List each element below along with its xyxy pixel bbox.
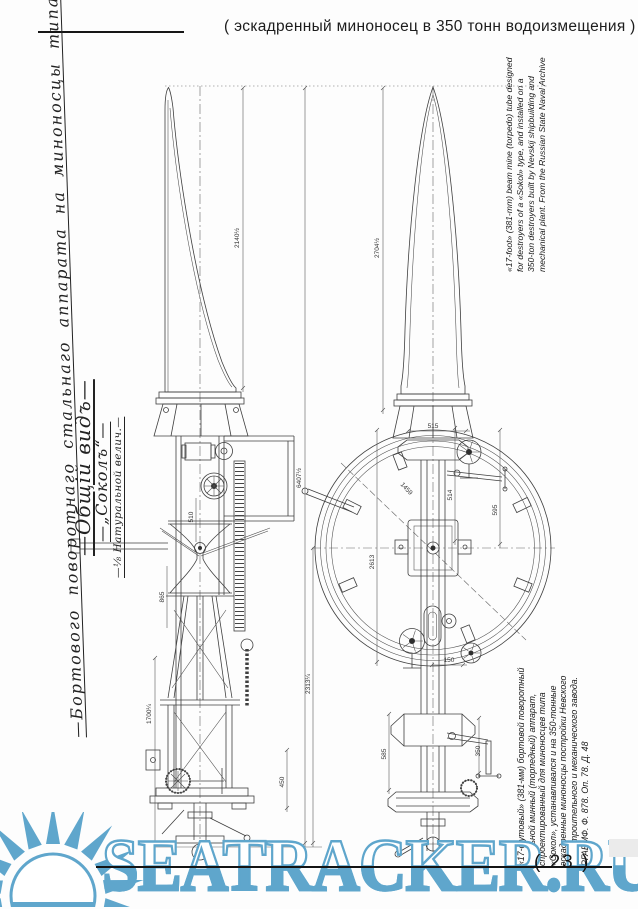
dimension-label: 1459 — [399, 481, 414, 497]
drawing-title-sokol: —„Соколъ“— — [92, 422, 111, 542]
dimension-label: 585 — [381, 748, 388, 759]
dimension-label: 2313¼ — [305, 673, 312, 693]
page-header: ( эскадренный миноносец в 350 тонн водои… — [224, 18, 636, 36]
drawing-title-scale: —⅛ Натуральной велич.— — [112, 417, 124, 578]
training-circle-cleats — [339, 452, 532, 643]
dimension-label: 2613 — [369, 554, 376, 569]
dimension-label: 510 — [188, 511, 195, 522]
caption-line: for destroyers of a «Sokol» type, and in… — [515, 57, 526, 272]
caption-line: 350-ton destroyers built by Nevskij ship… — [526, 57, 537, 272]
dimension-label: 515 — [428, 423, 439, 430]
dimension-label: 514 — [447, 489, 454, 500]
dimension-label: 1700¼ — [146, 703, 153, 723]
dimension-label: 865 — [159, 591, 166, 602]
dimension-label: 350 — [475, 745, 482, 756]
centerlines — [148, 86, 555, 856]
scan-artifact — [609, 839, 638, 857]
dimension-label: 2704½ — [373, 237, 381, 257]
dimension-label: 6407½ — [295, 467, 303, 487]
scanned-page: ( эскадренный миноносец в 350 тонн водои… — [0, 0, 638, 907]
caption-line: mechanical plant. From the Russian State… — [537, 57, 548, 272]
caption-line: «17-foot» (381-mm) beam mine (torpedo) t… — [504, 57, 515, 272]
dimension-label: 150 — [444, 657, 455, 664]
dimension-label: 450 — [279, 776, 286, 787]
caption-english: «17-foot» (381-mm) beam mine (torpedo) t… — [504, 57, 548, 272]
dimension-label: 595 — [492, 504, 499, 515]
page-number: ( 23 ) — [534, 852, 590, 874]
dimension-label: 2140½ — [233, 227, 241, 247]
